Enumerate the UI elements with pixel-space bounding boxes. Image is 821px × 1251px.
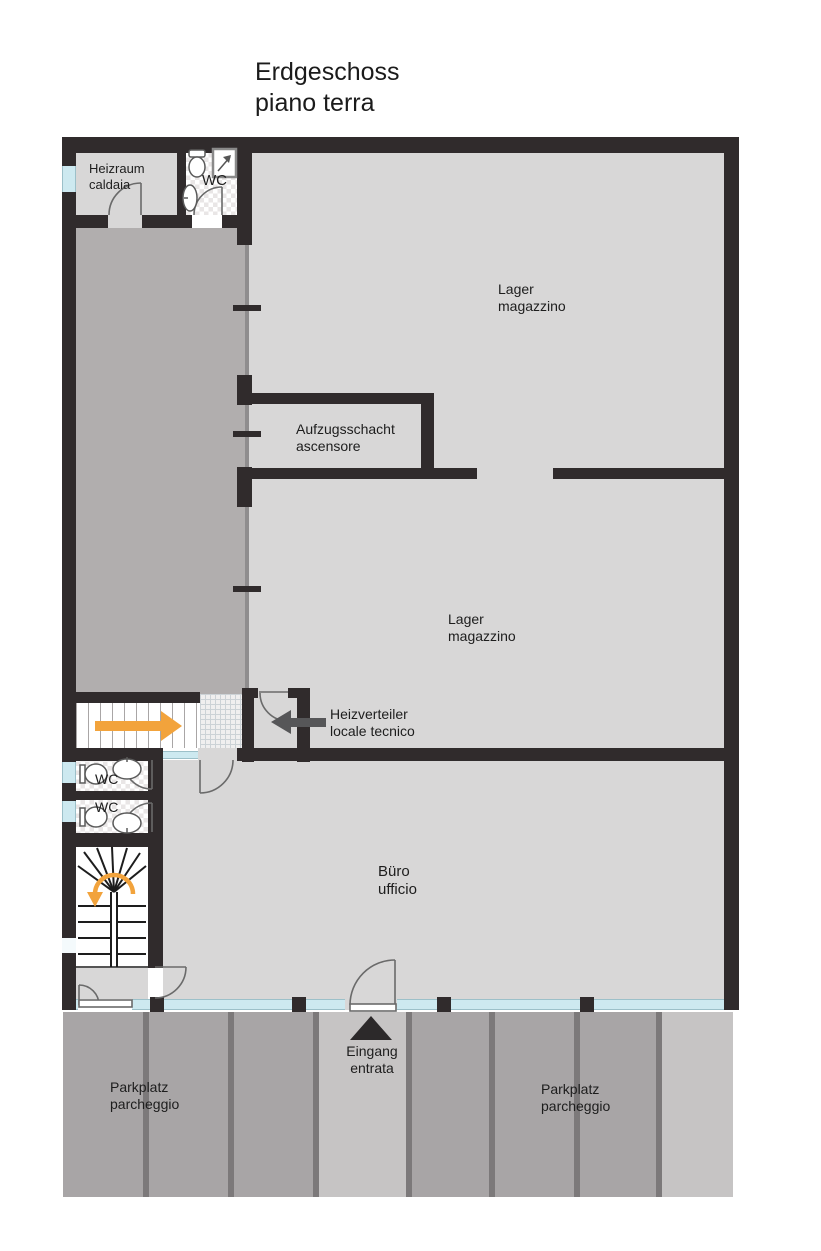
winder-stairs bbox=[76, 847, 148, 967]
door-swing-hall bbox=[200, 760, 233, 793]
ramp-arrow-icon bbox=[95, 711, 182, 741]
label-wc-top: WC bbox=[202, 172, 227, 189]
floor-plan: Erdgeschoss piano terra bbox=[0, 0, 821, 1251]
door-swing-wc-top bbox=[194, 187, 222, 215]
label-heizraum: Heizraum caldaia bbox=[89, 161, 145, 193]
door-swing-side-exit bbox=[79, 985, 132, 1007]
label-parkplatz-right: Parkplatz parcheggio bbox=[541, 1081, 610, 1115]
label-wc-upper: WC bbox=[95, 771, 118, 788]
label-wc-lower: WC bbox=[95, 799, 118, 816]
label-heizverteiler: Heizverteiler locale tecnico bbox=[330, 706, 415, 740]
label-parkplatz-left: Parkplatz parcheggio bbox=[110, 1079, 179, 1113]
label-aufzugsschacht: Aufzugsschacht ascensore bbox=[296, 421, 395, 455]
label-lager-lower: Lager magazzino bbox=[448, 611, 516, 645]
sink-icon bbox=[113, 813, 141, 833]
heizverteiler-arrow-icon bbox=[271, 710, 326, 734]
entrance-arrow-icon bbox=[350, 1016, 392, 1040]
door-swing-entrance bbox=[350, 960, 396, 1011]
label-eingang: Eingang entrata bbox=[330, 1043, 414, 1077]
label-buero: Büro ufficio bbox=[378, 863, 417, 899]
label-lager-upper: Lager magazzino bbox=[498, 281, 566, 315]
door-swing-vestibule bbox=[155, 967, 186, 998]
sink-icon bbox=[183, 185, 197, 211]
